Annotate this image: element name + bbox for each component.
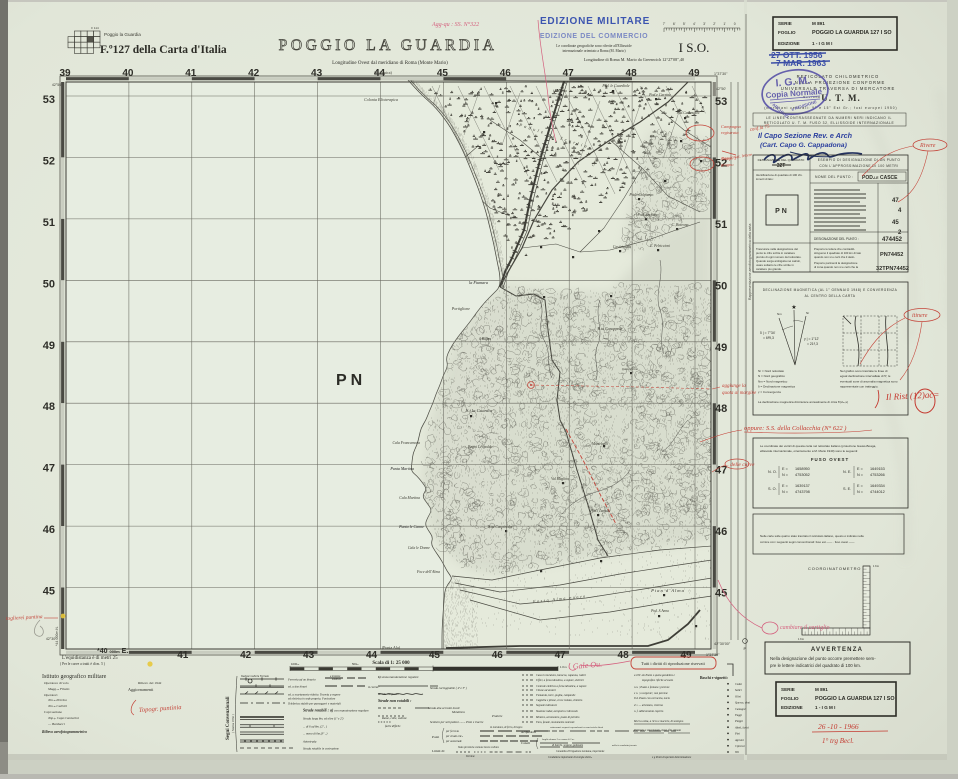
- svg-text:Rilievo aerofotogrammetrico: Rilievo aerofotogrammetrico: [42, 730, 87, 734]
- svg-text:PN: PN: [775, 208, 789, 215]
- svg-text:Punta le Canne: Punta le Canne: [398, 524, 424, 529]
- svg-text:a 100 .sm Punto o quota geod: a 100 .sm Punto o quota geodetica e: [634, 674, 676, 677]
- svg-text:Centrale elettrica a forza idr: Centrale elettrica a forza idraulica, a …: [536, 685, 587, 688]
- svg-text:AVVERTENZA: AVVERTENZA: [811, 647, 863, 653]
- svg-text:Tutti i diritti di riproduzion: Tutti i diritti di riproduzione riservat…: [641, 661, 705, 666]
- svg-text:Pod. le Guardiole: Pod. le Guardiole: [601, 84, 629, 88]
- svg-text:48: 48: [618, 650, 630, 661]
- svg-text:facile difficile: facile difficile: [385, 725, 401, 728]
- svg-text:Longitudine Ovest dal meridian: Longitudine Ovest dal meridiano di Roma …: [332, 61, 448, 66]
- svg-text:Aggiornamenti: Aggiornamenti: [128, 687, 154, 692]
- svg-text:Cala Martina: Cala Martina: [399, 496, 420, 500]
- svg-text:49: 49: [688, 68, 700, 79]
- svg-text:51: 51: [43, 217, 55, 229]
- svg-text:1639137: 1639137: [795, 484, 810, 488]
- svg-text:1': 1': [723, 22, 726, 26]
- svg-text:49: 49: [43, 340, 55, 352]
- svg-text:cambiare il cartiglio: cambiare il cartiglio: [780, 625, 829, 631]
- svg-text:Nm: Nm: [777, 312, 782, 316]
- svg-text:Acquedotti: Acquedotti: [521, 730, 536, 734]
- svg-text:di zona quando non si e: di zona quando non si e certi che la: [814, 265, 858, 269]
- svg-text:= 6g9,3: = 6g9,3: [763, 336, 774, 340]
- svg-text:per ferrovia: per ferrovia: [445, 730, 459, 733]
- svg-text:F.º127 della Carta d'Italia: F.º127 della Carta d'Italia: [100, 44, 227, 56]
- svg-text:Autostrada: Autostrada: [302, 740, 317, 744]
- svg-text:LE LINEE CONTRASSEGNATE DA: LE LINEE CONTRASSEGNATE DA NUMERI NERI I…: [766, 116, 892, 120]
- svg-text:P: P: [744, 646, 747, 651]
- svg-text:FOGLIO: FOGLIO: [778, 30, 796, 35]
- svg-text:C. Pelriccioni: C. Pelriccioni: [650, 244, 670, 248]
- svg-text:Foce dell'Alma: Foce dell'Alma: [416, 570, 440, 574]
- svg-text:Punta Martina: Punta Martina: [389, 466, 414, 471]
- svg-text:Salici: Salici: [735, 688, 742, 692]
- svg-text:M 891: M 891: [815, 687, 828, 692]
- svg-text:POGGIO LA GUARDIA: POGGIO LA GUARDIA: [279, 37, 498, 54]
- svg-text:quando non si e certi che: quando non si e certi che il desti-: [814, 255, 855, 259]
- svg-text:F 114: F 114: [91, 26, 99, 30]
- svg-text:γ = Convergenza: γ = Convergenza: [758, 390, 781, 394]
- svg-text:Teleferica stabile per passegg: Teleferica stabile per passeggeri e mate…: [288, 702, 341, 706]
- svg-text:42°50': 42°50': [716, 87, 726, 91]
- svg-text:(meridiani centrali: 9° e 15°: (meridiani centrali: 9° e 15° Est Gr.; f…: [764, 106, 897, 110]
- svg-text:53: 53: [43, 94, 55, 106]
- svg-text:POGGIO LA GUARDIA 127 I SO: POGGIO LA GUARDIA 127 I SO: [812, 30, 892, 36]
- svg-text:44: 44: [366, 650, 378, 661]
- svg-text:3': 3': [703, 22, 706, 26]
- svg-text:1 Km.: 1 Km.: [560, 665, 568, 669]
- svg-text:Le coordinate geografiche sono: Le coordinate geografiche sono riferite …: [556, 44, 632, 48]
- svg-text:Operatore di volo: Operatore di volo: [44, 681, 69, 685]
- svg-text:Miniera, aeromotore, pozzo di: Miniera, aeromotore, pozzo di petrolio: [535, 716, 580, 719]
- svg-text:Cipressi: Cipressi: [735, 744, 745, 748]
- svg-text:la Fiumara: la Fiumara: [469, 280, 488, 285]
- svg-text:DESIGNAZIONE DEL PUNTO :: DESIGNAZIONE DEL PUNTO :: [814, 237, 859, 241]
- svg-text:Operatori: Operatori: [44, 693, 57, 697]
- svg-text:Cala Francamora: Cala Francamora: [392, 441, 420, 445]
- svg-text:50: 50: [715, 280, 727, 292]
- svg-text:Bagni Leopoldo: Bagni Leopoldo: [468, 445, 492, 449]
- svg-text:S.t la Guardia: S.t la Guardia: [466, 408, 493, 413]
- svg-text:47: 47: [555, 650, 567, 661]
- svg-text:ESEMPIO DI DESIGNAZIONE DI: ESEMPIO DI DESIGNAZIONE DI UN PUNTO: [818, 158, 901, 162]
- svg-text:n.n. | Pozzo o fontana | peren: n.n. | Pozzo o fontana | perenne: [634, 686, 670, 689]
- svg-text:SERIE: SERIE: [778, 21, 792, 26]
- svg-text:49: 49: [680, 650, 692, 661]
- svg-text:★: ★: [791, 304, 796, 311]
- svg-text:N =: N =: [782, 473, 789, 477]
- svg-text:E =: E =: [857, 484, 864, 488]
- svg-text:EDIZIONE: EDIZIONE: [781, 705, 803, 710]
- svg-text:rappresentate con tratteggio: rappresentate con tratteggio.: [840, 385, 879, 389]
- svg-text:Querce, olmi: Querce, olmi: [735, 701, 750, 705]
- svg-text:Boschi e vignetti:: Boschi e vignetti:: [700, 676, 728, 680]
- svg-text:Strade non rotabili :: Strade non rotabili :: [378, 698, 412, 703]
- svg-text:Rappresentazione aerofotogramm: Rappresentazione aerofotogrammetrica del…: [748, 224, 752, 300]
- svg-text:N = Nord geografico: N = Nord geografico: [758, 374, 785, 378]
- svg-text:42°30': 42°30': [46, 637, 56, 641]
- svg-text:42: 42: [248, 68, 260, 79]
- svg-text:1° trg Becl.: 1° trg Becl.: [822, 737, 854, 745]
- svg-text:Termine: Termine: [466, 755, 476, 758]
- svg-text:n. f. Abbeveratoio coperto: n. f. Abbeveratoio coperto: [634, 710, 664, 713]
- svg-text:Le coordinate dei vertici: Le coordinate dei vertici di questa cart…: [760, 444, 876, 448]
- svg-text:1658950: 1658950: [795, 467, 810, 471]
- svg-text:Nr = Nord reticolato: Nr = Nord reticolato: [758, 369, 784, 373]
- svg-text:DESIGNAZIONE DEL QUADRATO: DESIGNAZIONE DEL QUADRATO: [758, 158, 805, 162]
- svg-text:1 Km: 1 Km: [873, 564, 879, 568]
- svg-text:ellissoide internazionale, o: ellissoide internazionale, orientamento …: [760, 449, 858, 453]
- svg-text:42: 42: [240, 650, 252, 661]
- svg-text:51: 51: [715, 219, 727, 231]
- svg-text:NOME DEL PUNTO :: NOME DEL PUNTO :: [815, 175, 854, 179]
- svg-text:Palizzate e staccionata, sie: Palizzate e staccionata, siepe, filo spi…: [633, 729, 682, 732]
- svg-text:Istituto geografico militare: Istituto geografico militare: [42, 673, 107, 680]
- svg-text:di barche, sospeso, pedona: di barche, sospeso, pedonale: [552, 744, 584, 747]
- svg-text:Nel grafico sono tracciate: Nel grafico sono tracciate le linee di: [840, 369, 888, 373]
- svg-text:Pod.i Lanchi: Pod.i Lanchi: [589, 509, 610, 513]
- svg-text:1649334: 1649334: [870, 484, 885, 488]
- svg-text:in costruz.ª: in costruz.ª: [368, 686, 380, 689]
- svg-text:FUSO OVEST: FUSO OVEST: [811, 457, 849, 462]
- svg-text:E =: E =: [782, 467, 789, 471]
- svg-text:41: 41: [185, 68, 197, 79]
- svg-text:( Norma 1936 ): ( Norma 1936 ): [231, 714, 235, 733]
- svg-text:Viti: Viti: [735, 750, 739, 754]
- svg-text:42°30'00": 42°30'00": [714, 642, 731, 646]
- svg-text:Nella designazione del punt: Nella designazione del punto occorre pre…: [770, 656, 876, 661]
- svg-text:quota al margine: quota al margine: [722, 391, 757, 396]
- svg-text:N =: N =: [857, 490, 864, 494]
- svg-text:52: 52: [43, 155, 55, 167]
- svg-text:5': 5': [683, 22, 686, 26]
- svg-text:COORDINATOMETRO: COORDINATOMETRO: [808, 566, 861, 571]
- svg-text:i Bacinia: i Bacinia: [553, 89, 567, 93]
- svg-text:39: 39: [59, 68, 71, 79]
- svg-text:40: 40: [122, 68, 134, 79]
- svg-text:Portiglione: Portiglione: [451, 306, 470, 311]
- svg-text:*44 000m N.: *44 000m N.: [55, 626, 59, 646]
- svg-text:C. Botrona: C. Botrona: [672, 223, 689, 227]
- svg-text:(Follonica): (Follonica): [374, 70, 392, 75]
- svg-text:Cala le Donne: Cala le Donne: [408, 546, 430, 550]
- svg-text:Castironara: Castironara: [613, 245, 632, 249]
- svg-text:43: 43: [311, 68, 323, 79]
- svg-text:Ferrovia ad un binario: Ferrovia ad un binario: [287, 678, 316, 682]
- svg-text:E =: E =: [782, 484, 789, 488]
- svg-text:Faggi: Faggi: [734, 713, 742, 717]
- svg-text:La declinazione magnetica d: La declinazione magnetica diminuisce ann…: [758, 400, 848, 404]
- svg-text:POGGIO LA GUARDIA 127 I SO: POGGIO LA GUARDIA 127 I SO: [815, 696, 895, 702]
- svg-text:0: 0: [734, 22, 736, 26]
- svg-text:50: 50: [43, 278, 55, 290]
- svg-text:e g Ponti di speciale determin: e g Ponti di speciale determinazione: [652, 756, 692, 759]
- svg-text:Castagni: Castagni: [735, 707, 746, 711]
- svg-text:Nr: Nr: [806, 311, 809, 315]
- svg-text:γ | = 1°12': γ | = 1°12': [804, 337, 819, 341]
- svg-text:Montebello: Montebello: [591, 442, 609, 446]
- svg-text:46: 46: [500, 68, 512, 79]
- svg-text:Casa in muratura, baracca, cap: Casa in muratura, baracca, capanna, rude…: [536, 674, 586, 677]
- svg-text:ed elettrica in sede propria.: ed elettrica in sede propria. Funicolare: [288, 697, 336, 701]
- svg-text:45: 45: [715, 588, 727, 600]
- svg-text:4753052: 4753052: [795, 473, 810, 477]
- svg-text:*40 000m E.: *40 000m E.: [97, 648, 128, 655]
- svg-text:d = — artesiano, cisterna: d = — artesiano, cisterna: [634, 704, 663, 707]
- svg-text:Chiuse ad aratori: Chiuse ad aratori: [536, 689, 556, 692]
- svg-text:Fumaiola, torre, puglia, campa: Fumaiola, torre, puglia, campanile: [535, 694, 576, 697]
- svg-text:Poggio la Guardia: Poggio la Guardia: [104, 32, 141, 37]
- svg-text:474452: 474452: [882, 237, 903, 243]
- svg-text:B.ta Canappole: B.ta Canappole: [597, 326, 622, 331]
- svg-text:48: 48: [626, 68, 638, 79]
- svg-text:26 -10 - 1966: 26 -10 - 1966: [818, 722, 859, 731]
- svg-text:Strada campestre: Strada campestre: [378, 692, 400, 696]
- svg-text:Conduttura importante di energ: Conduttura importante di energia elettr.…: [548, 756, 592, 759]
- svg-text:47: 47: [43, 463, 55, 475]
- svg-text:N. O.: N. O.: [768, 470, 777, 474]
- svg-text:carattere piu grande.: carattere piu grande.: [756, 267, 782, 271]
- svg-text:EDIZIONE: EDIZIONE: [778, 41, 800, 46]
- svg-text:I S.O.: I S.O.: [679, 40, 710, 55]
- svg-text:Muri a calza, a ricco e maceri: Muri a calza, a ricco e macerie, di sost…: [633, 720, 684, 723]
- svg-text:topografica riferite al suolo: topografica riferite al suolo: [642, 679, 674, 682]
- svg-text:Agg-qu : SS. N°322: Agg-qu : SS. N°322: [431, 21, 479, 28]
- svg-text:Pratiche: Pratiche: [491, 714, 503, 718]
- svg-text:giugno: giugno: [721, 162, 734, 167]
- svg-text:PN: PN: [336, 372, 366, 389]
- svg-text:Pod. S.Anna: Pod. S.Anna: [650, 609, 669, 613]
- svg-text:N. E.: N. E.: [843, 470, 851, 474]
- svg-text:Cedui: Cedui: [735, 682, 742, 686]
- svg-text:Pioppi: Pioppi: [734, 719, 743, 723]
- svg-text:1649153: 1649153: [870, 467, 885, 471]
- svg-text:Sentiero per soli pedoni .....: Sentiero per soli pedoni ........ Piste …: [430, 720, 484, 724]
- svg-text:1 - I G M I: 1 - I G M I: [815, 705, 835, 710]
- svg-text:53: 53: [715, 96, 727, 108]
- svg-text:41: 41: [177, 650, 189, 661]
- svg-text:Il Capo Sezione Rev. e Arch: Il Capo Sezione Rev. e Arch: [758, 131, 853, 140]
- svg-text:32T: 32T: [777, 163, 786, 169]
- svg-text:Nelle carte sulle quali è: Nelle carte sulle quali è stato tracciat…: [760, 534, 864, 538]
- svg-text:per autostrade: per autostrade: [445, 740, 463, 743]
- svg-text:42°50': 42°50': [52, 83, 62, 87]
- svg-text:Strada rotabile in costruzione: Strada rotabile in costruzione: [303, 747, 339, 751]
- svg-text:47: 47: [563, 68, 575, 79]
- svg-text:Top.fo Capo Cantarini: Top.fo Capo Cantarini: [48, 716, 79, 720]
- svg-text:2': 2': [713, 22, 716, 26]
- svg-text:per strade ord.e: per strade ord.e: [445, 735, 463, 738]
- svg-text:EDIZIONE MILITARE: EDIZIONE MILITARE: [540, 16, 650, 27]
- svg-text:Pod. Sartiano: Pod. Sartiano: [636, 213, 658, 217]
- svg-text:itinere: itinere: [912, 313, 928, 319]
- svg-text:PN74452: PN74452: [880, 252, 903, 258]
- svg-text:(Punta Ala): (Punta Ala): [382, 645, 401, 650]
- svg-text:(Cart. Capo G. Cappadona): (Cart. Capo G. Cappadona): [760, 142, 848, 149]
- svg-text:47: 47: [892, 198, 899, 204]
- svg-text:43: 43: [303, 650, 315, 661]
- svg-text:RETICOLATO U. T. M. FUSO 32: RETICOLATO U. T. M. FUSO 32, ELLISSOIDE …: [764, 121, 895, 125]
- svg-text:4743798: 4743798: [795, 490, 810, 494]
- svg-text:N =: N =: [782, 490, 789, 494]
- svg-text:registrata: registrata: [721, 130, 739, 135]
- svg-text:Stato provincia comu: Stato provincia comune bosco coltura: [458, 746, 499, 749]
- svg-text:Pian d'Alma: Pian d'Alma: [650, 588, 685, 593]
- svg-text:Cappella e pilone, croce isola: Cappella e pilone, croce isolata, cimite…: [536, 699, 583, 702]
- svg-text:sotterranei scopert: sotterranei scoperti sopraelevati su mur…: [550, 726, 603, 729]
- svg-text:δ | = 7°34': δ | = 7°34': [760, 331, 776, 335]
- svg-text:Pod.i Colpiano: Pod.i Colpiano: [628, 193, 652, 197]
- svg-text:Magg.re Filotto: Magg.re Filotto: [47, 687, 70, 691]
- svg-text:Olivi: Olivi: [735, 694, 741, 698]
- svg-text:7': 7': [663, 22, 666, 26]
- svg-text:Faro, fanale, monumento notevo: Faro, fanale, monumento notevole: [535, 721, 575, 724]
- svg-text:POD.LE CASCE: POD.LE CASCE: [862, 175, 898, 181]
- svg-text:46: 46: [43, 524, 55, 536]
- svg-text:Uffici, a forza idraulica, a v: Uffici, a forza idraulica, a vapore, ele…: [536, 679, 584, 682]
- svg-text:oppure: S.S. della Collacchia: oppure: S.S. della Collacchia (N° 622 ): [744, 425, 846, 432]
- svg-text:Strada carreggiabile ( 4ª: Strada carreggiabile ( 4ª e 5ª ): [430, 686, 467, 690]
- svg-text:aggiunge la: aggiunge la: [722, 384, 746, 389]
- svg-text:Colonia Elioterapica: Colonia Elioterapica: [364, 97, 398, 102]
- svg-text:1 - I G M I: 1 - I G M I: [812, 41, 832, 46]
- svg-text:Mulattiera: Mulattiera: [451, 710, 465, 714]
- svg-text:Campetroso: Campetroso: [622, 367, 639, 371]
- svg-text:Capi sezione: Capi sezione: [44, 710, 62, 714]
- svg-text:EDIZIONE DEL COMMERCIO: EDIZIONE DEL COMMERCIO: [540, 33, 648, 40]
- svg-text:δ = Declinazione magnetic: δ = Declinazione magnetica: [758, 385, 795, 389]
- svg-text:45: 45: [892, 220, 899, 226]
- svg-text:1 Km: 1 Km: [798, 637, 804, 641]
- svg-text:Ten.te Calistri: Ten.te Calistri: [48, 704, 67, 708]
- svg-text:S. E.: S. E.: [843, 487, 851, 491]
- svg-text:in muratura, di ferro, d: in muratura, di ferro, di legno: [490, 726, 523, 729]
- svg-text:Rivere: Rivere: [919, 143, 936, 149]
- svg-text:ed. a due binari: ed. a due binari: [288, 685, 307, 689]
- svg-text:6': 6': [673, 22, 676, 26]
- svg-text:45: 45: [43, 586, 55, 598]
- svg-text:E =: E =: [857, 467, 864, 471]
- svg-text:( Per le curve a tratti è di: ( Per le curve a tratti è di m. 5 ): [60, 662, 106, 666]
- svg-text:N =: N =: [857, 473, 864, 477]
- svg-text:Limiti di:: Limiti di:: [432, 749, 445, 753]
- svg-text:larghi almeno 3 m. me: larghi almeno 3 m. meno di 3 m.: [542, 738, 575, 741]
- svg-text:Canali: Canali: [521, 741, 530, 745]
- svg-text:45: 45: [437, 68, 449, 79]
- svg-text:Pod.Casanuova: Pod.Casanuova: [676, 111, 700, 115]
- svg-text:M 891: M 891: [812, 21, 825, 26]
- svg-text:49: 49: [715, 342, 727, 354]
- svg-text:Canaletta d'irrigazione mont: Canaletta d'irrigazione montana, importa…: [556, 750, 605, 753]
- svg-text:1°37'30": 1°37'30": [714, 72, 728, 76]
- svg-text:46: 46: [492, 650, 504, 661]
- svg-text:Pod.e Carrine: Pod.e Carrine: [648, 93, 671, 97]
- svg-text:lometri di lato :: lometri di lato :: [756, 177, 774, 181]
- svg-text:SERIE: SERIE: [781, 687, 795, 692]
- svg-text:Nm = Nord magnetico: Nm = Nord magnetico: [758, 379, 788, 383]
- svg-text:4744012: 4744012: [870, 490, 885, 494]
- svg-text:cornice con i seguenti seg: cornice con i seguenti segni convenziona…: [760, 540, 855, 544]
- svg-text:Agrumi: Agrumi: [734, 738, 744, 742]
- svg-text:b) senza manutenzione regolare: b) senza manutenzione regolare: [378, 675, 419, 679]
- svg-text:Rilievo del 1942: Rilievo del 1942: [138, 681, 162, 685]
- svg-text:48: 48: [43, 401, 55, 413]
- svg-text:Strade rotabili : a) con manu: Strade rotabili : a) con manutenzione re…: [303, 708, 369, 713]
- svg-text:CON L'APPROSSIMAZIONE DI 10: CON L'APPROSSIMAZIONE DI 100 METRI: [819, 164, 898, 168]
- svg-text:AL CENTRO DELLA CARTA: AL CENTRO DELLA CARTA: [805, 294, 856, 298]
- svg-text:Abeti, larici: Abeti, larici: [734, 725, 749, 729]
- svg-text:il Bagno: il Bagno: [479, 337, 491, 341]
- svg-text:S. O.: S. O.: [768, 487, 777, 491]
- svg-text:Ten.te Petrino: Ten.te Petrino: [48, 698, 67, 702]
- svg-text:32TPN74452: 32TPN74452: [876, 266, 909, 272]
- svg-text:Il d. Pozzo con carrucola, no: Il d. Pozzo con carrucola, noria: [633, 697, 670, 700]
- svg-text:L'equidistanza è di metri 25: L'equidistanza è di metri 25: [62, 656, 118, 661]
- svg-text:Scala di 1: 25 000: Scala di 1: 25 000: [372, 661, 410, 666]
- svg-text:1°37'30": 1°37'30": [706, 653, 720, 657]
- svg-text:.. delle curve: .. delle curve: [726, 462, 755, 468]
- svg-text:= 21g,3: = 21g,3: [807, 342, 818, 346]
- svg-text:internazionale orientato a Rom: internazionale orientato a Roma (M. Mari…: [562, 49, 626, 53]
- svg-text:4753266: 4753266: [870, 473, 885, 477]
- svg-text:Stazione Galleria Fermata: Stazione Galleria Fermata: [241, 675, 270, 678]
- svg-text:FOGLIO: FOGLIO: [781, 696, 799, 701]
- svg-text:Pini: Pini: [734, 732, 740, 736]
- svg-text:48: 48: [715, 403, 727, 415]
- svg-text:egual declinazione intervall: egual declinazione intervallate di 5'; l…: [840, 374, 891, 378]
- svg-text:Segnale indicatore: Segnale indicatore: [536, 704, 558, 707]
- svg-text:S.ta Carpinola: S.ta Carpinola: [488, 524, 512, 529]
- svg-text:46: 46: [715, 526, 727, 538]
- svg-text:nelle in condotta forzata: nelle in condotta forzata: [612, 744, 637, 747]
- svg-text:Stazione radar, aeroporto e id: Stazione radar, aeroporto e idroscalo: [536, 710, 578, 713]
- svg-text:DECLINAZIONE MAGNETICA (AL: DECLINAZIONE MAGNETICA (AL 1° GENNAIO 19…: [763, 288, 898, 292]
- svg-text:Val Maglino: Val Maglino: [551, 477, 569, 481]
- svg-text:Campagna: Campagna: [721, 124, 742, 129]
- svg-text:Ponti: Ponti: [432, 735, 439, 739]
- svg-text:45: 45: [429, 650, 441, 661]
- svg-text:Strada larga 8m. ed oltre (1ª: Strada larga 8m. ed oltre (1ª e 2ª): [303, 717, 343, 721]
- svg-text:eventuali zone di anomalia: eventuali zone di anomalia magnetica son…: [840, 379, 898, 383]
- svg-text:pre le lettere indicatrici: pre le lettere indicatrici del quadrato …: [770, 663, 861, 668]
- svg-text:— Bardacci: — Bardacci: [47, 722, 65, 726]
- svg-text:e n. | o sorgente | non perenn: e n. | o sorgente | non perenne: [634, 692, 669, 695]
- svg-text:4': 4': [693, 22, 696, 26]
